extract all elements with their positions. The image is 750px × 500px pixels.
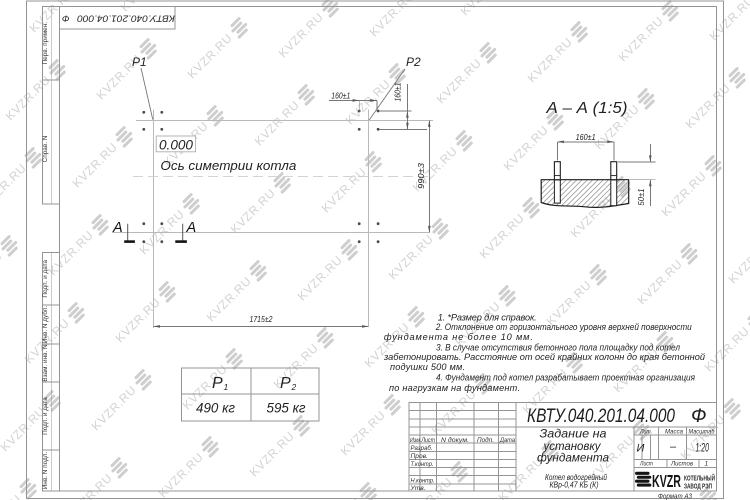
svg-text:3. В случае отсутствия бетонно: 3. В случае отсутствия бетонного пола пл… <box>436 343 680 353</box>
svg-text:Справ. N: Справ. N <box>42 135 49 162</box>
svg-text:фундамента: фундамента <box>537 451 609 465</box>
svg-text:1715±2: 1715±2 <box>250 315 273 324</box>
svg-text:Разраб.: Разраб. <box>411 444 433 452</box>
svg-text:Масса: Масса <box>665 428 683 435</box>
svg-text:Лит.: Лит. <box>639 428 652 435</box>
svg-text:Ф: Ф <box>691 405 707 427</box>
svg-text:–: – <box>669 441 677 453</box>
svg-text:4. Фундамент под котел разраба: 4. Фундамент под котел разрабатывает про… <box>436 372 695 382</box>
svg-text:Т.контр.: Т.контр. <box>411 461 434 468</box>
svg-text:Масштаб: Масштаб <box>689 427 715 435</box>
svg-text:по нагрузкам на фундамент.: по нагрузкам на фундамент. <box>389 383 520 393</box>
svg-text:1: 1 <box>705 461 709 468</box>
svg-text:160±1: 160±1 <box>331 92 350 101</box>
svg-text:2. Отклонение от горизонтально: 2. Отклонение от горизонтального уровня … <box>435 322 692 332</box>
svg-text:990±3: 990±3 <box>417 163 426 189</box>
svg-text:Р: Р <box>212 375 223 392</box>
svg-text:Ф: Ф <box>62 12 70 23</box>
svg-text:Пров.: Пров. <box>411 453 429 460</box>
svg-text:Подп. и дата: Подп. и дата <box>42 259 49 297</box>
svg-text:А: А <box>112 220 123 236</box>
svg-text:1: 1 <box>224 382 229 392</box>
svg-text:N докум.: N докум. <box>441 436 469 444</box>
svg-text:подушки 500 мм.: подушки 500 мм. <box>390 362 465 372</box>
svg-text:фундамента не более 10 мм.: фундамента не более 10 мм. <box>384 332 533 342</box>
svg-text:Дата: Дата <box>499 437 515 444</box>
svg-text:А: А <box>186 220 197 236</box>
svg-text:1. *Размер для справок.: 1. *Размер для справок. <box>438 313 537 323</box>
svg-text:Перв. примен.: Перв. примен. <box>42 22 49 65</box>
svg-text:KVZR: KVZR <box>652 471 681 491</box>
svg-text:160±1: 160±1 <box>394 83 403 102</box>
svg-text:1:20: 1:20 <box>695 443 709 455</box>
svg-text:Формат А3: Формат А3 <box>658 491 693 500</box>
svg-text:Взам. инв. N: Взам. инв. N <box>42 344 49 382</box>
svg-text:Изм.Лист: Изм.Лист <box>410 437 435 444</box>
svg-text:0.000: 0.000 <box>159 138 193 153</box>
svg-text:Листов: Листов <box>670 461 693 468</box>
svg-text:КВТУ.040.201.04.000: КВТУ.040.201.04.000 <box>76 12 174 23</box>
svg-text:Ось симетрии котла: Ось симетрии котла <box>160 158 296 173</box>
svg-text:Подп.: Подп. <box>477 436 494 444</box>
svg-text:Подп. и дата: Подп. и дата <box>42 397 49 435</box>
svg-text:Утв.: Утв. <box>410 485 426 492</box>
svg-text:160±1: 160±1 <box>576 133 596 142</box>
svg-text:ЗАВОД РЭП: ЗАВОД РЭП <box>684 482 712 491</box>
svg-text:КВТУ.040.201.04.000: КВТУ.040.201.04.000 <box>527 405 675 427</box>
svg-text:забетонировать. Расстояние от: забетонировать. Расстояние от осей крайн… <box>383 352 705 362</box>
svg-text:50±1: 50±1 <box>637 189 646 206</box>
svg-text:Р2: Р2 <box>406 55 421 69</box>
svg-text:490 кг: 490 кг <box>196 400 235 416</box>
svg-text:А – А (1:5): А – А (1:5) <box>545 100 627 117</box>
svg-text:Лист: Лист <box>639 461 653 468</box>
svg-text:Р: Р <box>280 375 291 392</box>
svg-text:И: И <box>637 443 645 455</box>
svg-text:Инв. N подл.: Инв. N подл. <box>42 451 49 489</box>
svg-text:595 кг: 595 кг <box>267 400 306 416</box>
svg-text:Н.контр.: Н.контр. <box>411 478 435 485</box>
svg-text:Инв. N дубл.: Инв. N дубл. <box>41 306 49 344</box>
svg-text:КВр-0,47 КБ (К): КВр-0,47 КБ (К) <box>550 481 599 490</box>
svg-text:2: 2 <box>291 382 297 392</box>
svg-text:Р1: Р1 <box>132 55 147 69</box>
